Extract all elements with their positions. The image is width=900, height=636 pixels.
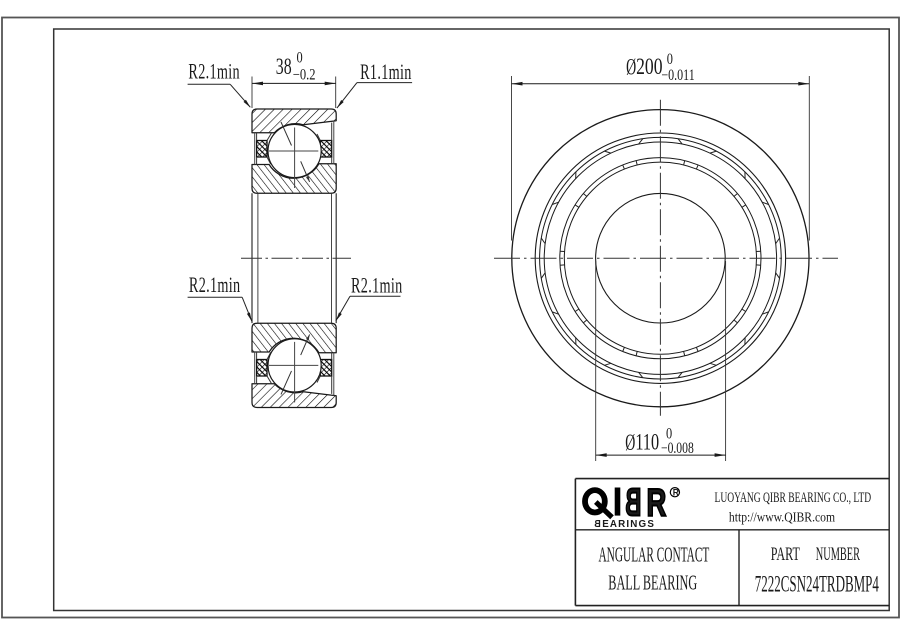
svg-text:BALL BEARING: BALL BEARING (608, 571, 697, 594)
svg-text:Ø: Ø (626, 55, 636, 81)
svg-text:http://www.QIBR.com: http://www.QIBR.com (729, 510, 835, 525)
svg-text:0: 0 (297, 49, 303, 67)
svg-text:−0.2: −0.2 (293, 66, 316, 84)
svg-text:B: B (625, 480, 641, 524)
svg-text:R2.1min: R2.1min (188, 59, 240, 84)
svg-text:NUMBER: NUMBER (816, 544, 861, 565)
svg-text:B: B (594, 519, 601, 531)
svg-text:−0.011: −0.011 (661, 66, 694, 83)
svg-text:Ø: Ø (625, 431, 635, 457)
svg-text:EARINGS: EARINGS (602, 519, 655, 530)
svg-text:110: 110 (635, 430, 659, 456)
svg-text:R: R (673, 487, 680, 497)
svg-text:7222CSN24TRDBMP4: 7222CSN24TRDBMP4 (755, 572, 879, 598)
svg-text:ANGULAR CONTACT: ANGULAR CONTACT (599, 543, 710, 567)
svg-text:200: 200 (636, 55, 662, 80)
svg-text:R2.1min: R2.1min (189, 273, 241, 298)
svg-text:38: 38 (276, 54, 292, 80)
svg-text:R2.1min: R2.1min (351, 273, 403, 298)
svg-text:R1.1min: R1.1min (360, 60, 412, 85)
svg-text:LUOYANG QIBR BEARING CO., LTD: LUOYANG QIBR BEARING CO., LTD (715, 489, 872, 506)
svg-text:PART: PART (771, 544, 800, 564)
svg-text:−0.008: −0.008 (661, 440, 694, 457)
